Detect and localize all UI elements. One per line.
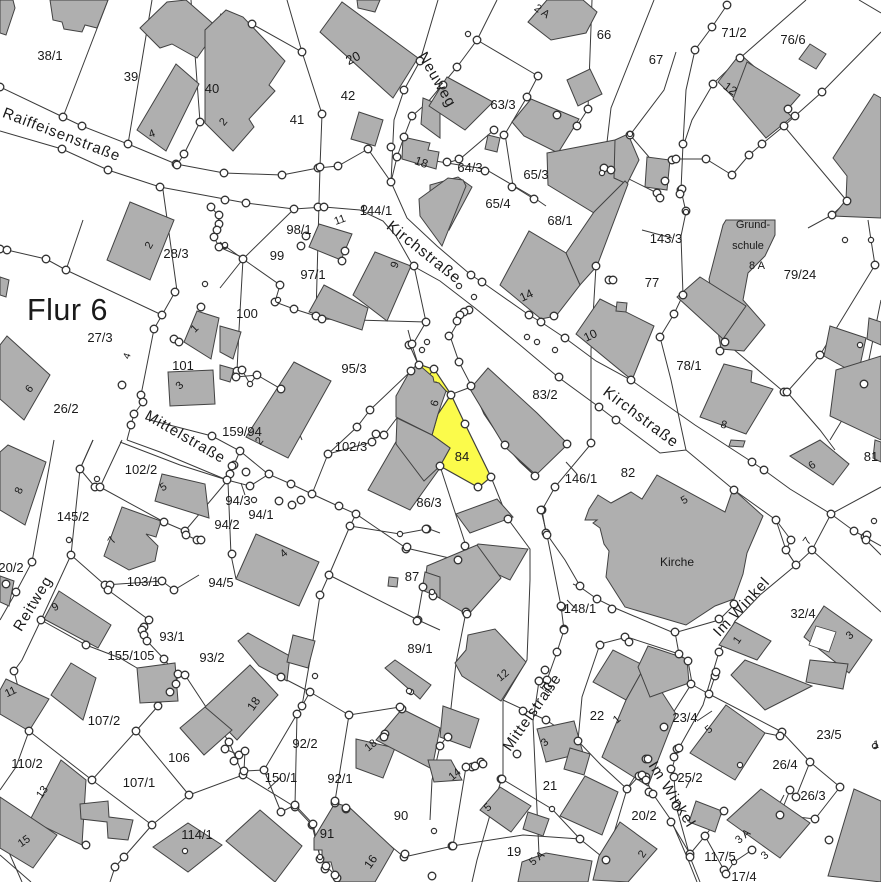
- svg-text:78/1: 78/1: [676, 358, 701, 373]
- svg-text:26/3: 26/3: [800, 788, 825, 803]
- svg-text:93/2: 93/2: [199, 650, 224, 665]
- svg-text:21: 21: [543, 778, 557, 793]
- svg-text:Flur 6: Flur 6: [27, 293, 108, 327]
- svg-text:79/24: 79/24: [784, 267, 817, 282]
- svg-text:41: 41: [290, 112, 304, 127]
- svg-text:68/1: 68/1: [547, 213, 572, 228]
- svg-text:40: 40: [205, 81, 219, 96]
- svg-text:67: 67: [649, 52, 663, 67]
- svg-text:101: 101: [172, 358, 194, 373]
- svg-text:26/2: 26/2: [53, 401, 78, 416]
- svg-text:92/2: 92/2: [292, 736, 317, 751]
- svg-text:23/4: 23/4: [672, 710, 697, 725]
- svg-text:Grund-: Grund-: [736, 219, 771, 231]
- svg-text:28/3: 28/3: [163, 246, 188, 261]
- svg-text:100: 100: [236, 306, 258, 321]
- svg-text:107/2: 107/2: [88, 713, 121, 728]
- svg-text:95/3: 95/3: [341, 361, 366, 376]
- svg-text:94/3: 94/3: [225, 493, 250, 508]
- svg-text:38/1: 38/1: [37, 48, 62, 63]
- svg-text:42: 42: [341, 88, 355, 103]
- svg-text:27/3: 27/3: [87, 330, 112, 345]
- svg-text:110/2: 110/2: [11, 756, 43, 771]
- svg-text:86/3: 86/3: [416, 495, 441, 510]
- svg-text:91: 91: [320, 826, 334, 841]
- svg-text:87: 87: [405, 569, 419, 584]
- svg-text:117/5: 117/5: [704, 849, 736, 864]
- svg-text:94/2: 94/2: [214, 517, 239, 532]
- svg-text:89/1: 89/1: [407, 641, 432, 656]
- svg-text:83/2: 83/2: [532, 387, 557, 402]
- svg-text:77: 77: [645, 275, 659, 290]
- svg-text:155/105: 155/105: [108, 648, 155, 663]
- svg-text:22: 22: [590, 708, 604, 723]
- svg-text:81: 81: [864, 449, 878, 464]
- svg-text:103/1: 103/1: [127, 574, 160, 589]
- svg-text:148/1: 148/1: [564, 601, 597, 616]
- svg-text:94/1: 94/1: [248, 507, 273, 522]
- svg-text:1: 1: [873, 739, 879, 751]
- svg-text:90: 90: [394, 808, 408, 823]
- svg-text:94/5: 94/5: [208, 575, 233, 590]
- svg-text:99: 99: [270, 248, 284, 263]
- svg-text:92/1: 92/1: [327, 771, 352, 786]
- svg-text:144/1: 144/1: [360, 203, 393, 218]
- svg-text:32/4: 32/4: [790, 606, 815, 621]
- svg-text:26/4: 26/4: [772, 757, 797, 772]
- svg-text:114/1: 114/1: [181, 827, 213, 842]
- svg-text:17/4: 17/4: [731, 869, 756, 882]
- svg-text:145/2: 145/2: [57, 509, 90, 524]
- svg-text:76/6: 76/6: [780, 32, 805, 47]
- svg-text:25/2: 25/2: [677, 770, 702, 785]
- svg-text:107/1: 107/1: [123, 775, 156, 790]
- svg-text:8 A: 8 A: [749, 260, 766, 272]
- svg-text:20/2: 20/2: [0, 560, 24, 575]
- svg-text:106: 106: [168, 750, 190, 765]
- svg-text:98/1: 98/1: [286, 222, 311, 237]
- svg-text:65/3: 65/3: [523, 167, 548, 182]
- svg-text:23/5: 23/5: [816, 727, 841, 742]
- svg-text:97/1: 97/1: [300, 267, 325, 282]
- svg-text:102/3: 102/3: [335, 439, 368, 454]
- svg-text:20/2: 20/2: [631, 808, 656, 823]
- svg-text:19: 19: [507, 844, 521, 859]
- svg-text:39: 39: [124, 69, 138, 84]
- svg-text:150/1: 150/1: [265, 770, 298, 785]
- svg-text:146/1: 146/1: [565, 471, 598, 486]
- svg-text:143/3: 143/3: [650, 231, 683, 246]
- svg-text:63/3: 63/3: [490, 97, 515, 112]
- svg-text:schule: schule: [732, 240, 764, 252]
- svg-text:64/3: 64/3: [457, 160, 482, 175]
- svg-text:65/4: 65/4: [485, 196, 510, 211]
- svg-text:84: 84: [455, 449, 469, 464]
- svg-text:93/1: 93/1: [159, 629, 184, 644]
- svg-text:82: 82: [621, 465, 635, 480]
- svg-text:Kirche: Kirche: [660, 555, 694, 569]
- svg-text:66: 66: [597, 27, 611, 42]
- svg-text:102/2: 102/2: [125, 462, 158, 477]
- svg-text:71/2: 71/2: [721, 25, 746, 40]
